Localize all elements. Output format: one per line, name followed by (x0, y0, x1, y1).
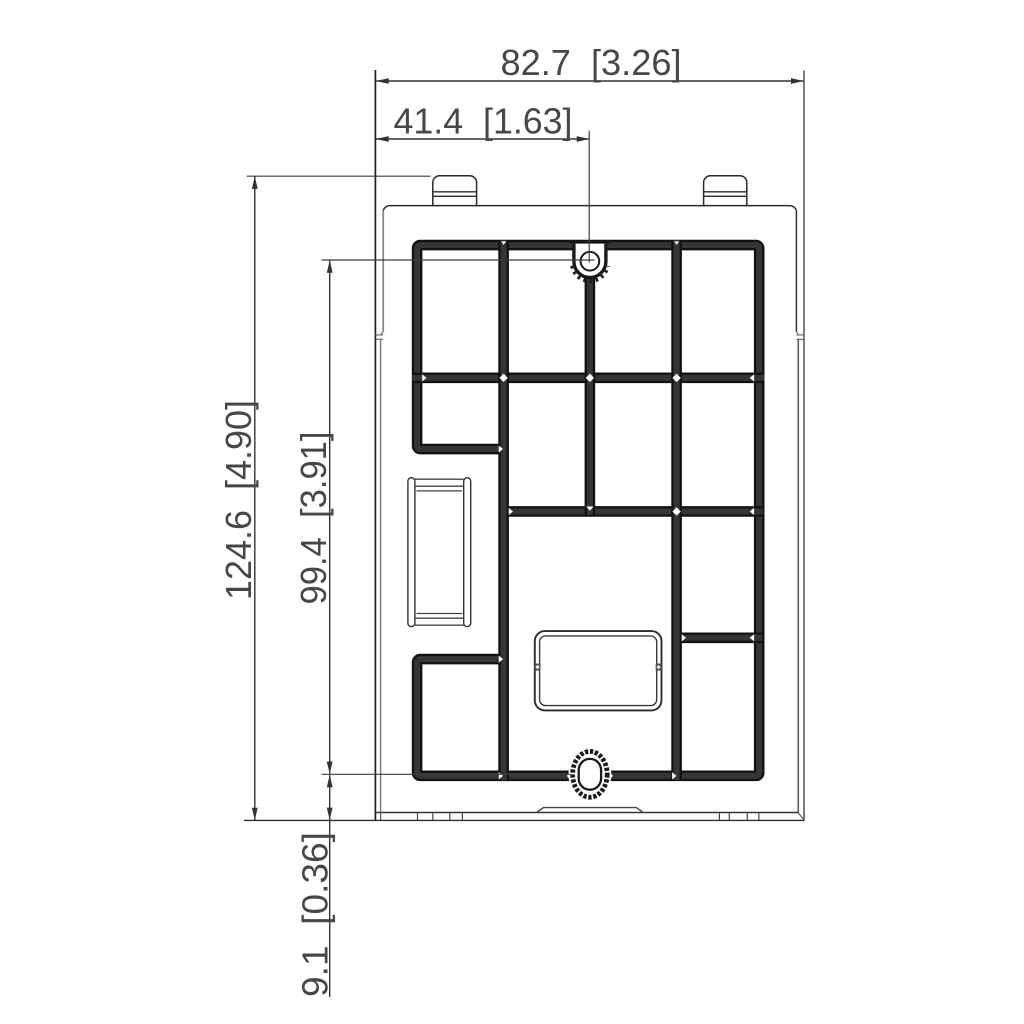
svg-text:41.4 [1.63]: 41.4 [1.63] (394, 100, 573, 141)
svg-text:9.1 [0.36]: 9.1 [0.36] (294, 832, 335, 997)
svg-text:82.7 [3.26]: 82.7 [3.26] (501, 42, 682, 83)
svg-text:99.4 [3.91]: 99.4 [3.91] (293, 432, 334, 605)
svg-text:124.6 [4.90]: 124.6 [4.90] (218, 400, 259, 600)
